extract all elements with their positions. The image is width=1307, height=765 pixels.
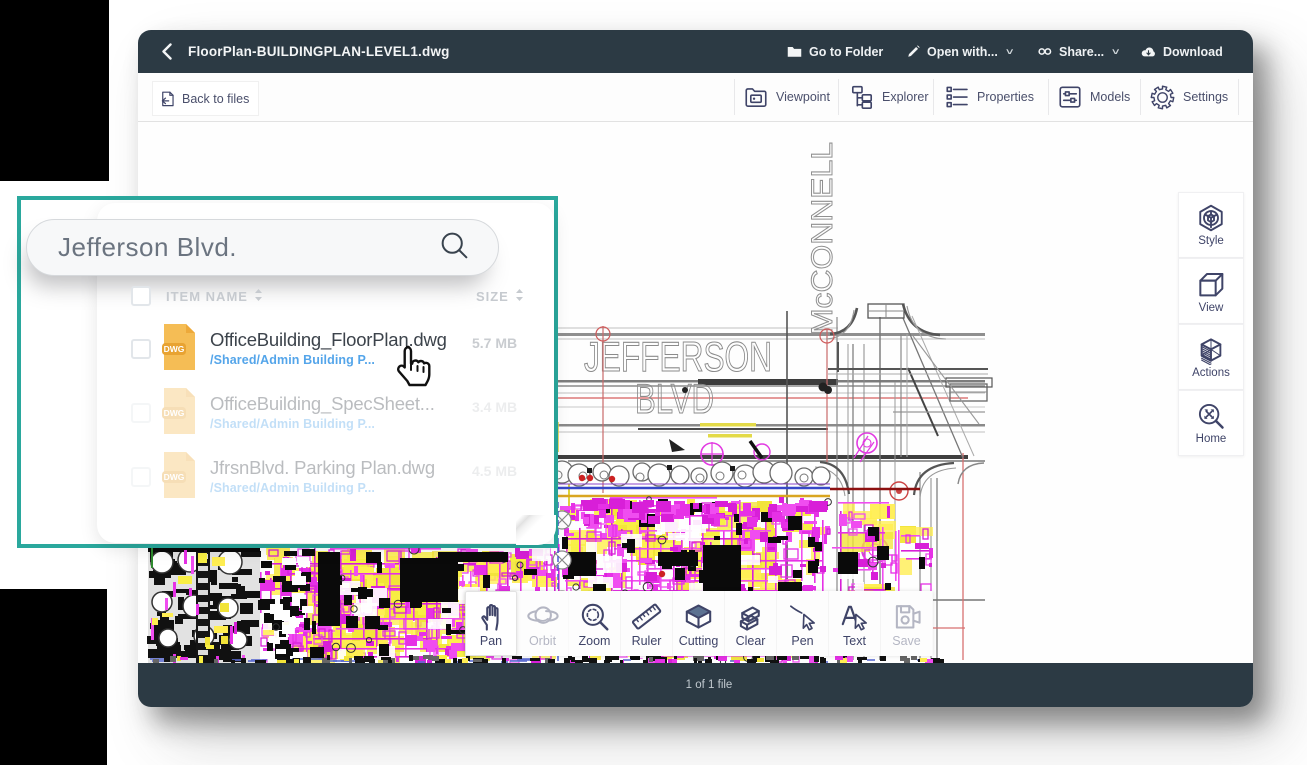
- svg-text:DWG: DWG: [164, 408, 185, 418]
- svg-text:DWG: DWG: [164, 472, 185, 482]
- svg-text:McCONNELL: McCONNELL: [806, 142, 839, 335]
- svg-text:DWG: DWG: [164, 344, 185, 354]
- svg-text:JEFFERSON: JEFFERSON: [584, 333, 772, 380]
- svg-text:BLVD: BLVD: [635, 375, 714, 422]
